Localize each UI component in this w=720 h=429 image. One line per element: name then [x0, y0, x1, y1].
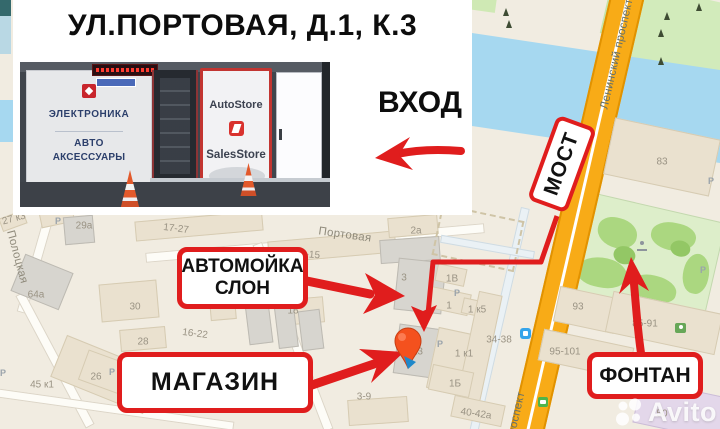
building-label: 1 к5 [468, 305, 486, 316]
building-label: 95-101 [549, 347, 580, 358]
building-label: 29а [76, 221, 93, 232]
building-label: 2а [410, 226, 421, 237]
led-sign [92, 64, 158, 76]
page-title: УЛ.ПОРТОВАЯ, Д.1, К.3 [13, 9, 472, 43]
carwash-line2: СЛОН [181, 278, 303, 300]
carwash-label: АВТОМОЙКА СЛОН [177, 247, 308, 309]
autostore-banner: AutoStore SalesStore [200, 68, 272, 188]
map-screenshot: 27 к329а17-275-152а64а30281816-222645 к1… [0, 0, 720, 429]
building-label: 85-91 [632, 319, 658, 330]
white-door [276, 72, 322, 182]
banner-logo-icon [229, 121, 244, 136]
sign-divider [55, 131, 123, 132]
avito-logo-icon [615, 398, 645, 428]
shop-label-text: МАГАЗИН [151, 368, 279, 397]
building-label: 17-27 [163, 222, 190, 236]
building-label: 1 к1 [455, 349, 473, 360]
watermark-text: Avito [648, 397, 717, 428]
autostore-text: AutoStore [203, 99, 269, 111]
street-label: Ленинский проспект [490, 391, 527, 429]
building-label: 1Б [449, 379, 461, 390]
building-label: 3 [401, 273, 407, 284]
street-sign-plate [96, 78, 136, 87]
building-label: 3-9 [357, 392, 371, 403]
electronics-text: ЭЛЕКТРОНИКА [27, 109, 151, 120]
ground [20, 182, 330, 207]
shop-entrance-door [152, 70, 198, 182]
building-label: 93 [572, 302, 583, 313]
fountain-label: ФОНТАН [587, 352, 703, 399]
storefront-photo: ЭЛЕКТРОНИКА АВТО АКСЕССУАРЫ AutoStore Sa… [20, 62, 330, 207]
electronics-sign: ЭЛЕКТРОНИКА АВТО АКСЕССУАРЫ [26, 70, 152, 185]
parking-icon: P [0, 368, 6, 378]
street-label: Ленинский проспект [598, 0, 635, 110]
building-label: 1В [446, 274, 458, 285]
parking-icon: P [55, 216, 61, 226]
entrance-arrow-icon [361, 132, 471, 177]
avito-watermark: Avito [615, 397, 717, 428]
building-label: 83 [656, 157, 667, 168]
building-label: 64а [28, 290, 45, 301]
building-label: 40-42а [460, 406, 492, 421]
building-label: 28 [137, 337, 148, 348]
carwash-label-text: АВТОМОЙКА СЛОН [181, 256, 303, 300]
building-label: к3 [413, 347, 423, 358]
entrance-label: ВХОД [365, 86, 475, 120]
salesstore-text: SalesStore [203, 149, 269, 161]
building-label: 45 к1 [30, 380, 54, 391]
parking-icon: P [454, 288, 460, 298]
parking-icon: P [708, 176, 714, 186]
street-label: Полоцкая [4, 229, 30, 285]
carwash-line1: АВТОМОЙКА [181, 256, 303, 278]
parking-icon: P [437, 339, 443, 349]
building-label: 16-22 [182, 327, 209, 341]
auto-text: АВТО [27, 138, 151, 149]
parking-icon: P [700, 265, 706, 275]
building-label: 1 [446, 301, 452, 312]
building-label: 34-38 [486, 335, 512, 346]
info-panel: УЛ.ПОРТОВАЯ, Д.1, К.3 ЭЛЕКТРОНИКА АВТО А… [13, 0, 472, 215]
fountain-label-text: ФОНТАН [599, 364, 690, 388]
store-logo-icon [82, 84, 96, 98]
building-label: 30 [129, 302, 140, 313]
shop-label: МАГАЗИН [117, 352, 313, 413]
street-label: Портовая [318, 225, 372, 244]
accessories-text: АКСЕССУАРЫ [27, 152, 151, 163]
building-label: 26 [90, 372, 101, 383]
parking-icon: P [109, 367, 115, 377]
